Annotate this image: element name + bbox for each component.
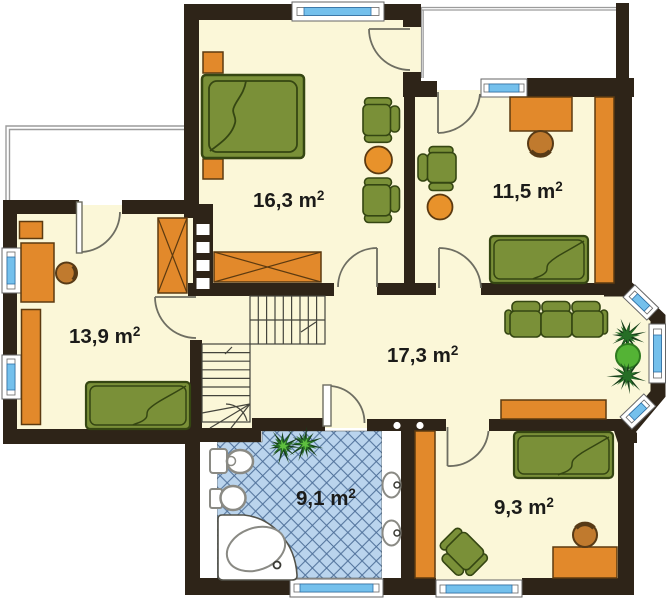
svg-text:16,3 m2: 16,3 m2 <box>253 188 324 212</box>
svg-text:17,3 m2: 17,3 m2 <box>387 343 458 367</box>
svg-text:9,3 m2: 9,3 m2 <box>494 495 554 519</box>
svg-text:13,9 m2: 13,9 m2 <box>69 324 140 348</box>
svg-text:11,5 m2: 11,5 m2 <box>493 179 563 203</box>
svg-text:9,1 m2: 9,1 m2 <box>296 486 356 510</box>
